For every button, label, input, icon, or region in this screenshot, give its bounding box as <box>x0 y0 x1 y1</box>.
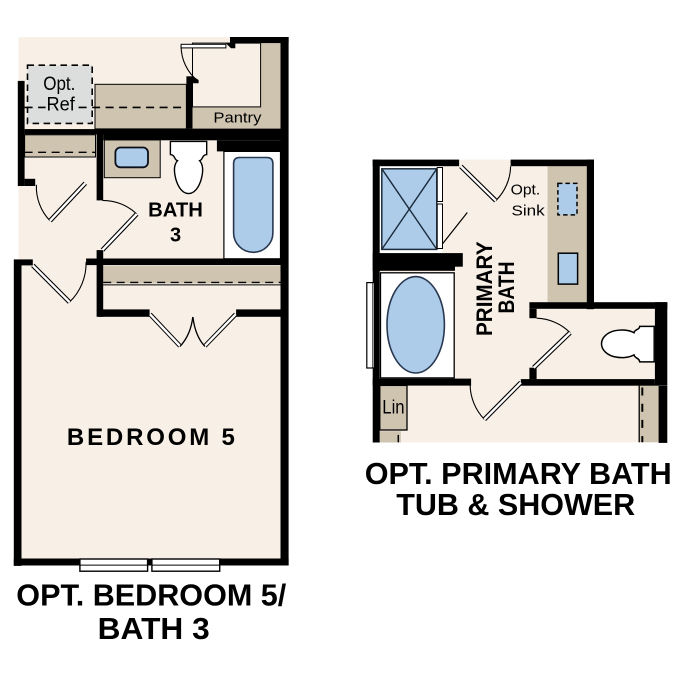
svg-text:OPT. BEDROOM 5/: OPT. BEDROOM 5/ <box>16 577 286 612</box>
svg-text:3: 3 <box>170 225 181 247</box>
svg-text:BATH: BATH <box>148 200 203 222</box>
svg-text:Pantry: Pantry <box>213 110 262 127</box>
svg-text:OPT. PRIMARY BATH: OPT. PRIMARY BATH <box>365 456 672 491</box>
svg-text:BATH: BATH <box>494 261 519 313</box>
svg-text:TUB & SHOWER: TUB & SHOWER <box>396 487 635 522</box>
svg-text:Opt.: Opt. <box>511 182 541 199</box>
svg-text:Opt.: Opt. <box>43 74 75 95</box>
svg-text:Lin: Lin <box>382 397 404 418</box>
svg-text:BATH 3: BATH 3 <box>98 611 210 646</box>
svg-text:Sink: Sink <box>512 203 546 220</box>
svg-text:Ref: Ref <box>47 94 76 115</box>
